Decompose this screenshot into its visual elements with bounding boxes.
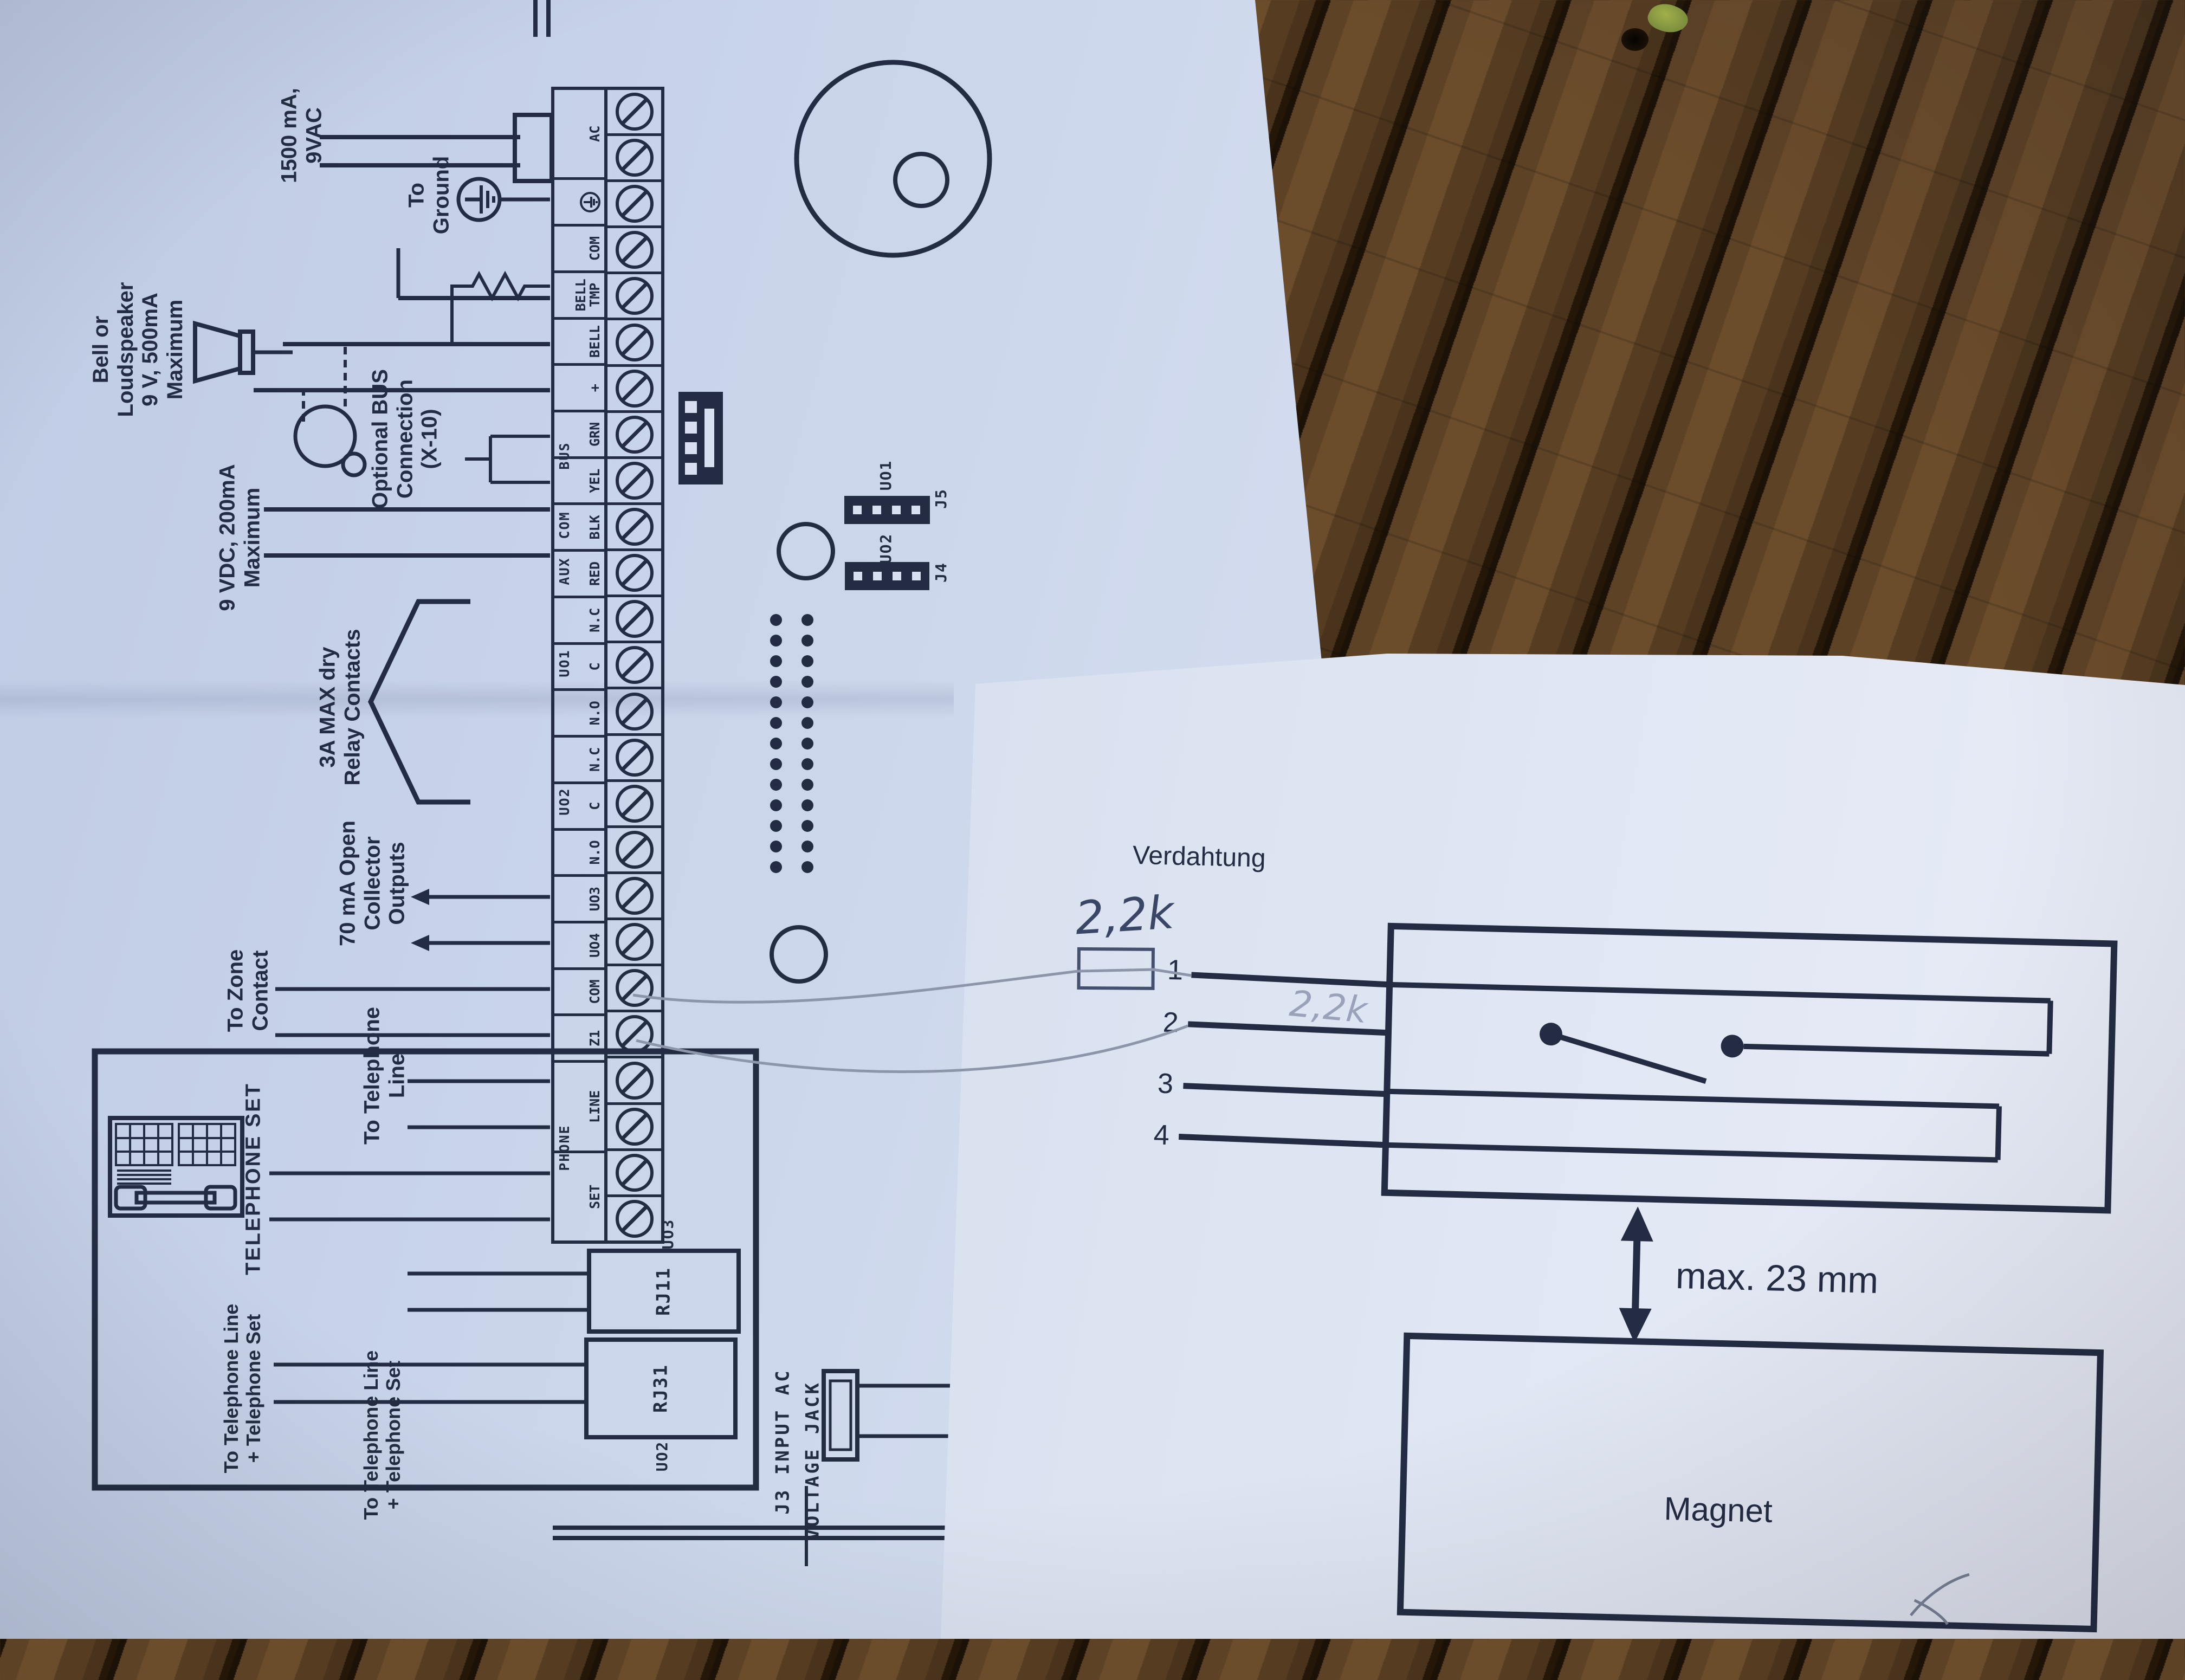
- photo-of-wiring-documents: { "wiring_diagram": { "transformer_label…: [0, 0, 2185, 1639]
- pencil-wires: [0, 0, 2185, 1639]
